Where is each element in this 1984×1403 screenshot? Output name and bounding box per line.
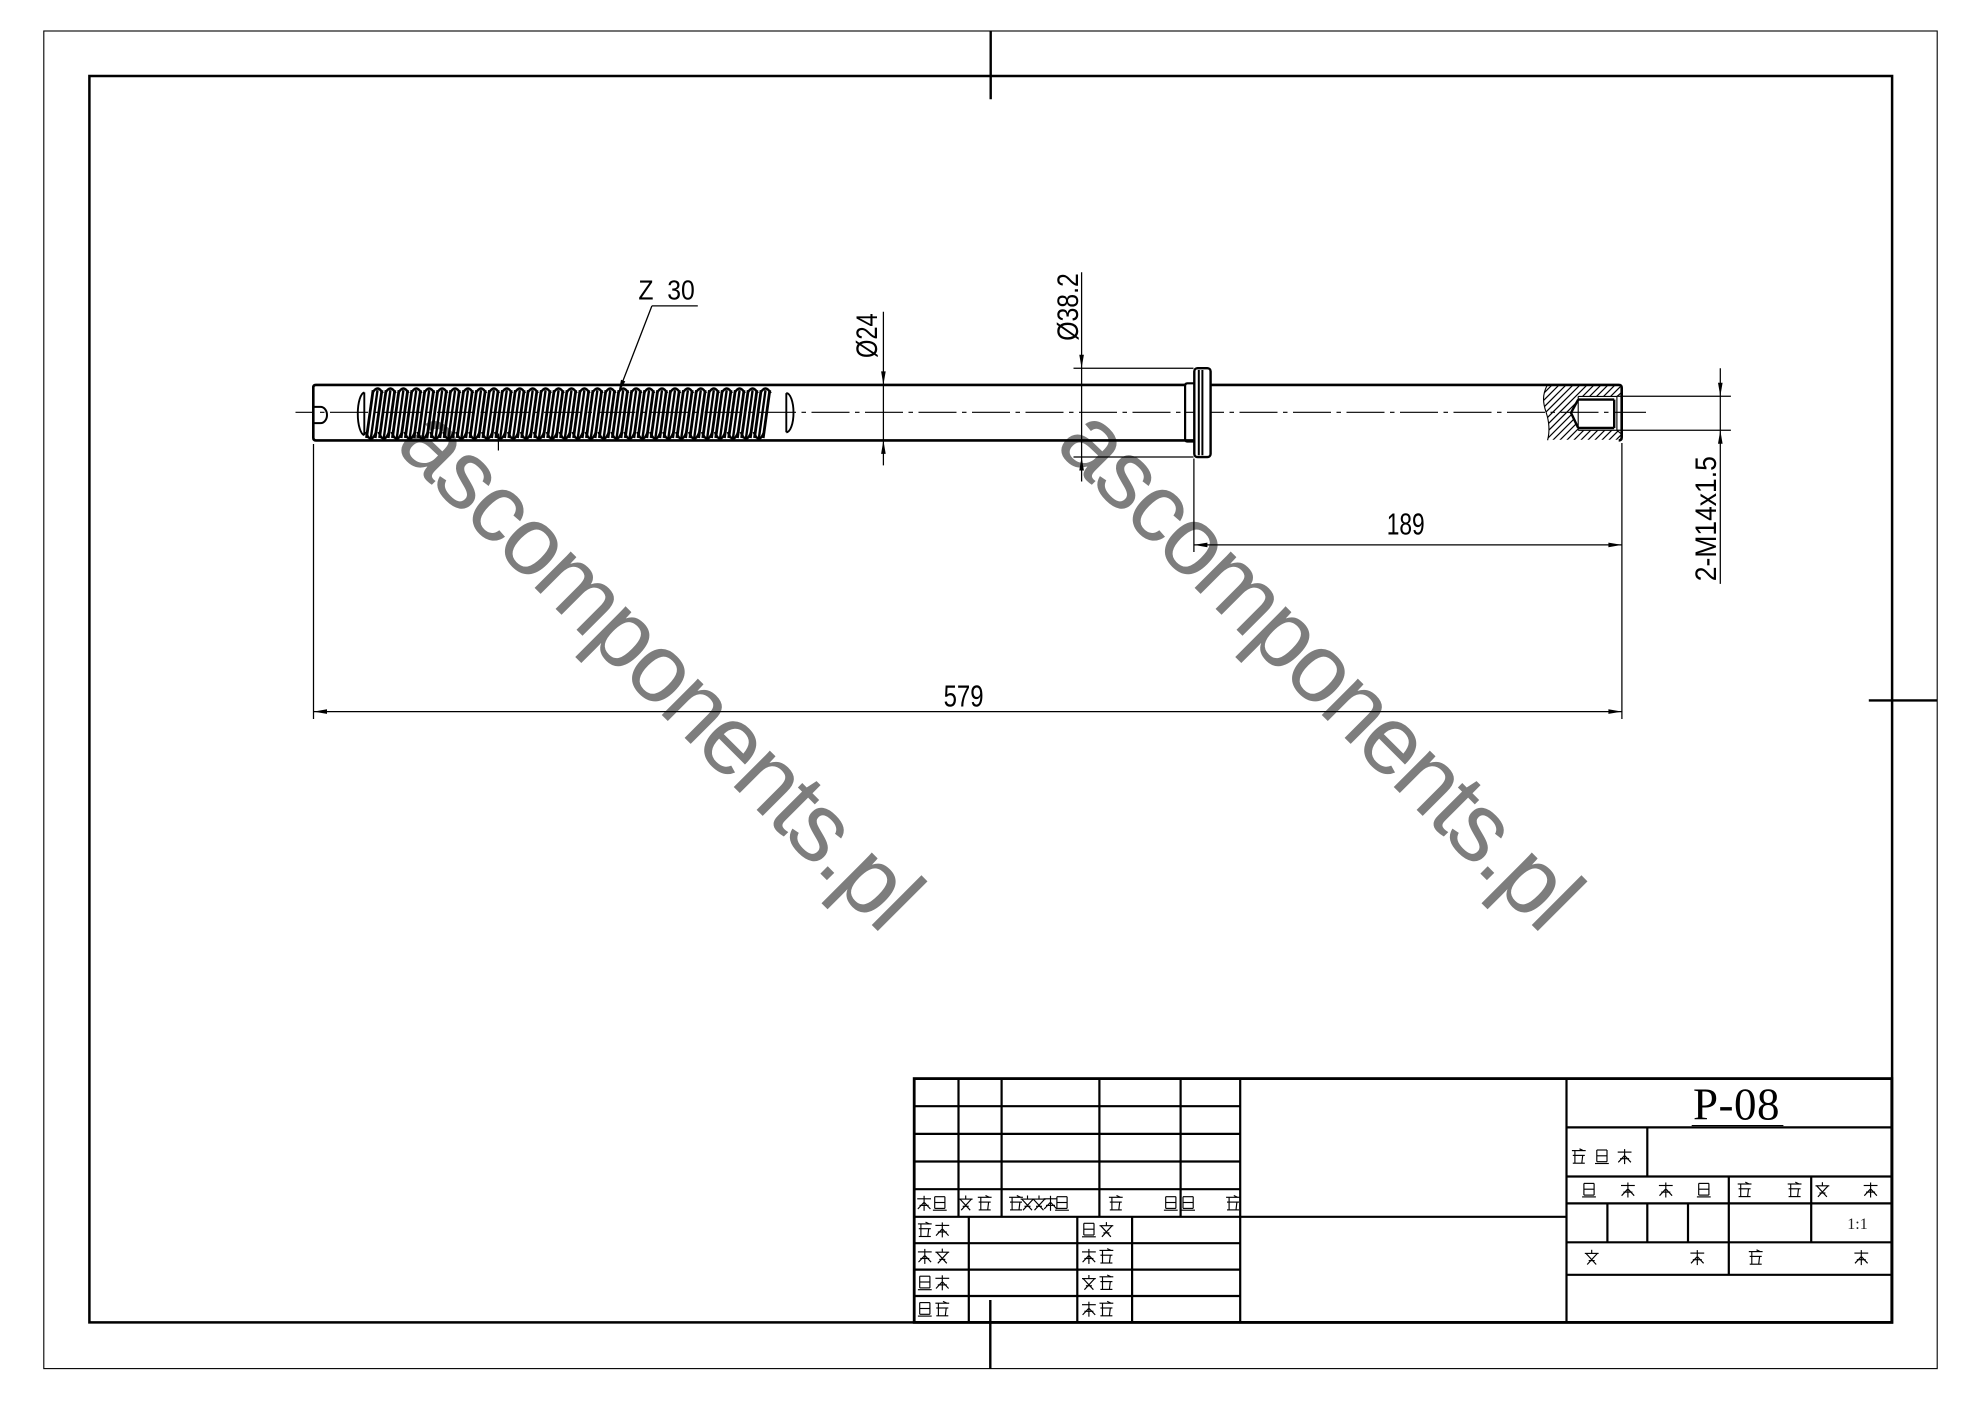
svg-text:189: 189 (1387, 507, 1425, 542)
svg-text:579: 579 (944, 679, 984, 714)
svg-text:Z 30: Z 30 (638, 274, 694, 305)
svg-text:Ø38.2: Ø38.2 (1052, 273, 1085, 341)
svg-text:ascomponents.pl: ascomponents.pl (379, 385, 943, 949)
svg-text:ascomponents.pl: ascomponents.pl (1039, 385, 1603, 949)
svg-text:Ø24: Ø24 (851, 313, 884, 358)
svg-text:2-M14x1.5: 2-M14x1.5 (1690, 456, 1723, 581)
svg-text:P-08: P-08 (1693, 1080, 1780, 1130)
svg-text:1:1: 1:1 (1847, 1216, 1867, 1233)
